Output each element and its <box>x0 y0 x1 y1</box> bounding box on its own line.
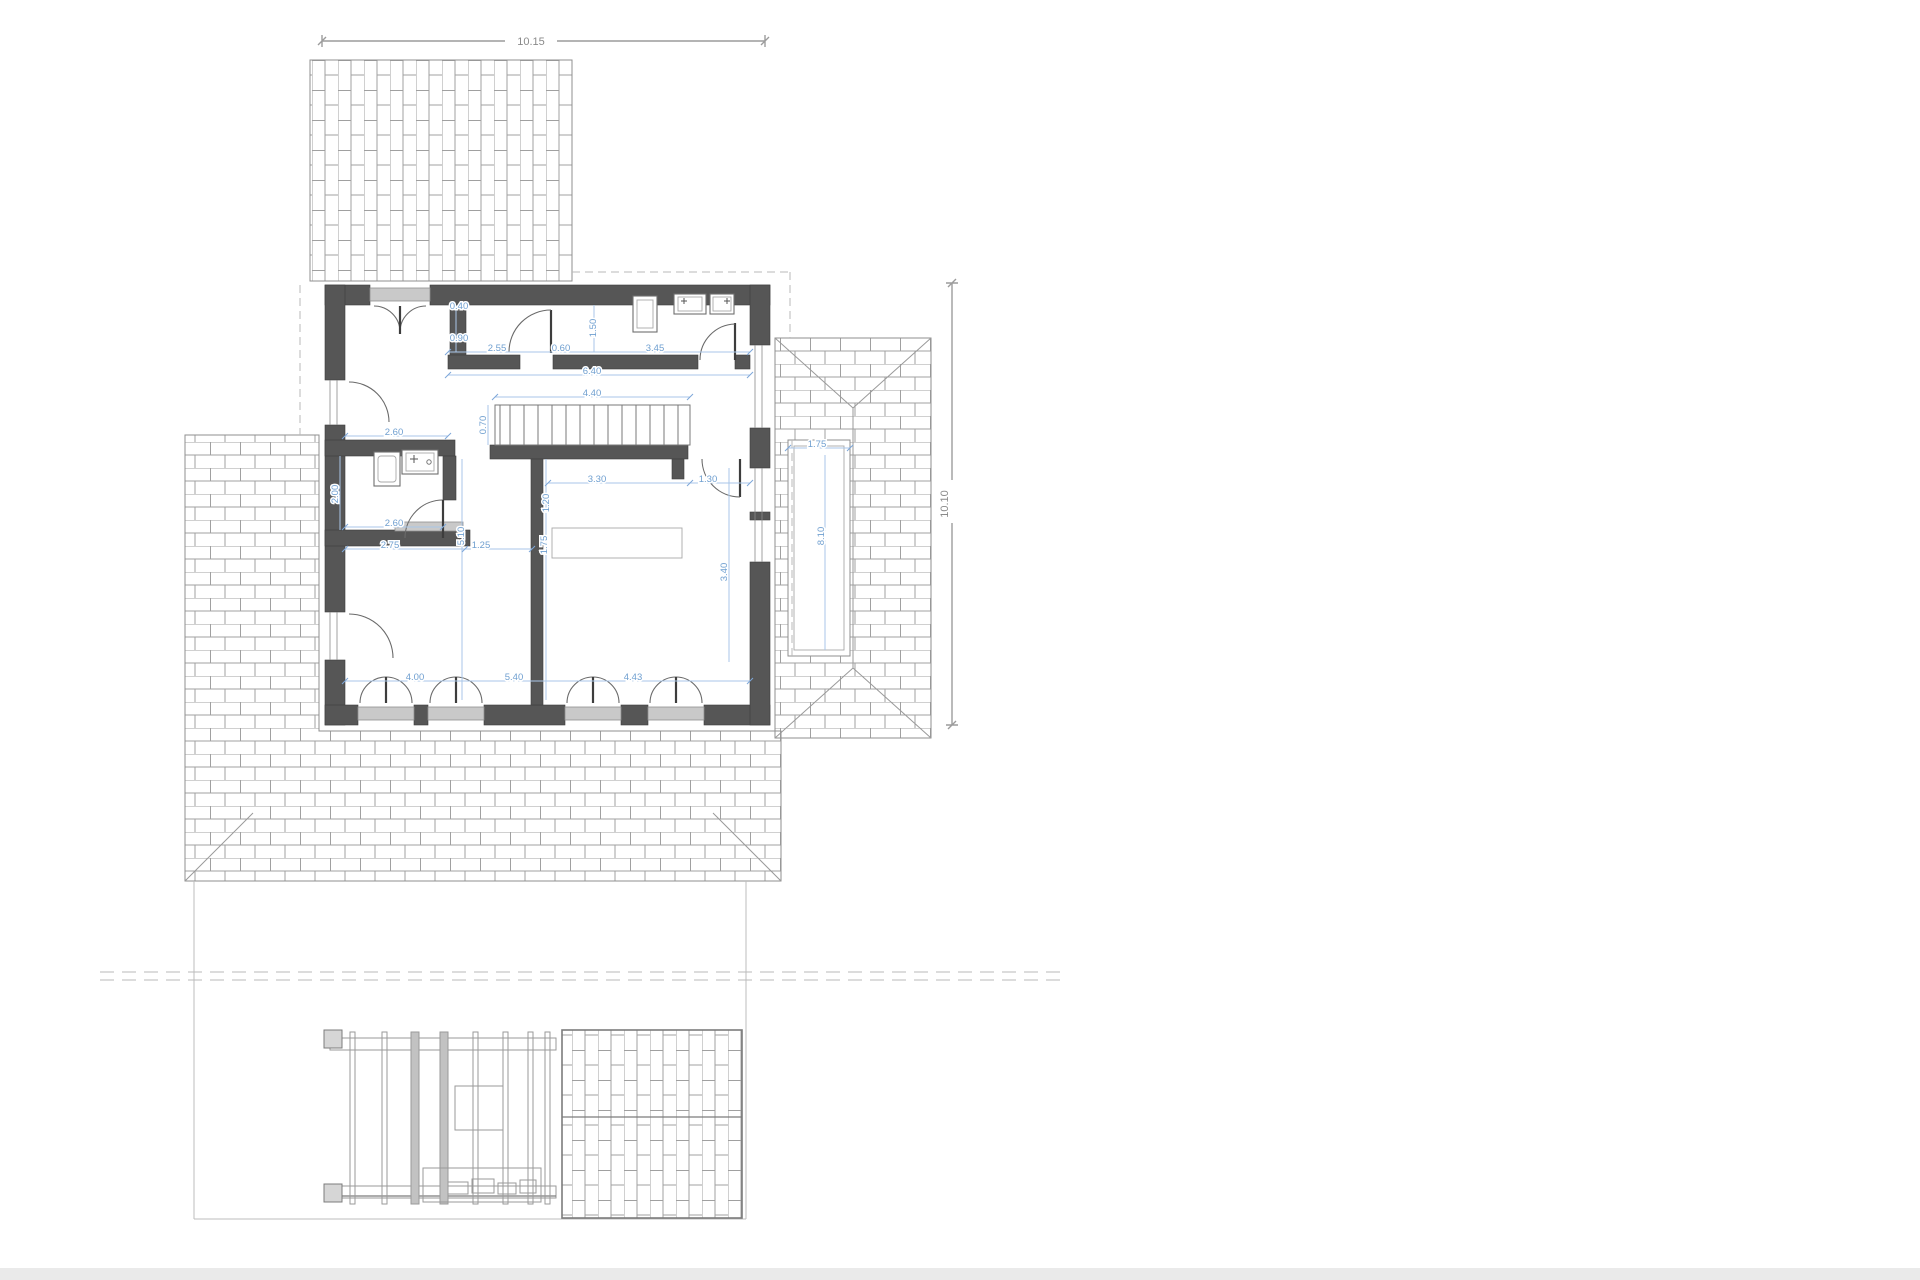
dimension-label: 1.75 <box>808 439 827 450</box>
wall-right <box>750 285 770 345</box>
window-left-2 <box>330 612 337 660</box>
stairs <box>495 405 690 445</box>
door-top-right-room <box>700 323 735 360</box>
dimension-label: 3.40 <box>719 563 730 582</box>
basin-fixture-2 <box>710 294 734 314</box>
roof-top-left-hatch <box>310 60 572 281</box>
dimension-label: 2.00 <box>330 485 341 504</box>
sill-bottom-door <box>648 707 704 720</box>
dimension-label: 1.20 <box>541 494 552 513</box>
door-corridor <box>509 310 551 353</box>
dimension-label: 0.90 <box>450 333 469 344</box>
roof-areas <box>185 60 931 881</box>
wall-right <box>750 562 770 725</box>
dimension-label: 1.75 <box>539 536 550 555</box>
pergola <box>324 1030 556 1204</box>
pergola-beam <box>382 1032 387 1204</box>
table <box>552 528 682 558</box>
sill-bottom-door <box>358 707 414 720</box>
pergola-seat <box>498 1183 516 1194</box>
dimension-label: 0.40 <box>450 301 469 312</box>
wall-under-stair <box>490 445 688 459</box>
dimension-label: 3.45 <box>646 343 665 354</box>
dimension-label: 4.00 <box>406 672 425 683</box>
pergola-beam <box>350 1032 355 1204</box>
light-well <box>788 440 850 656</box>
dimension-label: 6.40 <box>583 366 602 377</box>
basin-fixture-1 <box>674 294 706 314</box>
dimension-label: 0.60 <box>552 343 571 354</box>
dimension-label: 2.60 <box>385 518 404 529</box>
pergola-beam <box>503 1032 508 1204</box>
floor-plan-canvas: 0.400.902.550.603.451.506.404.400.702.60… <box>0 0 1920 1280</box>
dimension-label: 5.10 <box>456 527 467 546</box>
wall-right <box>750 428 770 468</box>
pergola-post-bottom-left <box>324 1184 342 1202</box>
drawing-page: 0.400.902.550.603.451.506.404.400.702.60… <box>0 0 1920 1280</box>
door-left-window-swing-1 <box>349 382 389 422</box>
window-left-1 <box>330 380 337 425</box>
dimension-label: 3.30 <box>588 474 607 485</box>
dimension-label: 8.10 <box>816 527 827 546</box>
roof-left-bottom-hatch <box>185 435 781 881</box>
pergola-beam <box>528 1032 533 1204</box>
wall-left <box>325 285 345 380</box>
wall-right-mullion <box>750 512 770 520</box>
annex-hatch <box>562 1030 742 1218</box>
dimension-label: 1.25 <box>472 540 491 551</box>
wall-corridor <box>448 355 520 369</box>
sill-bottom-door <box>565 707 621 720</box>
dimension-label: 1.50 <box>588 319 599 338</box>
door-left-window-swing-2 <box>349 614 393 658</box>
dimension-label: 4.40 <box>583 388 602 399</box>
dimension-label: 4.43 <box>624 672 643 683</box>
dimension-label: 10.10 <box>939 490 951 518</box>
wall-bottom <box>484 705 565 725</box>
wall-bottom <box>325 705 358 725</box>
wall-bottom <box>414 705 428 725</box>
pergola-table <box>455 1086 503 1130</box>
washbasin-fixture <box>402 450 438 474</box>
pergola-beam-wide <box>411 1032 419 1204</box>
wall-interior-v1 <box>450 305 466 355</box>
wall-post <box>672 459 684 479</box>
dimension-label: 2.75 <box>381 540 400 551</box>
dimension-label: 2.60 <box>385 427 404 438</box>
dimension-label: 5.40 <box>505 672 524 683</box>
door-top-double <box>374 306 426 334</box>
pergola-beam <box>473 1032 478 1204</box>
sill-bottom-door <box>428 707 484 720</box>
pergola-post-top-left <box>324 1030 342 1048</box>
viewer-bottom-edge <box>0 1268 1920 1280</box>
wall-bath-right <box>443 456 456 500</box>
wall-bottom <box>621 705 648 725</box>
wall-corridor <box>553 355 698 369</box>
window-right-1 <box>755 345 762 428</box>
pergola-beam <box>545 1032 550 1204</box>
dimension-label: 0.70 <box>478 416 489 435</box>
dimension-label: 1.30 <box>699 474 718 485</box>
dimension-label: 10.15 <box>517 36 545 48</box>
sill-top-door <box>370 288 430 301</box>
annex-roof <box>562 1030 742 1218</box>
pergola-beam-wide <box>440 1032 448 1204</box>
wall-corridor <box>735 355 750 369</box>
dimension-label: 2.55 <box>488 343 507 354</box>
pergola-seat <box>448 1182 468 1194</box>
